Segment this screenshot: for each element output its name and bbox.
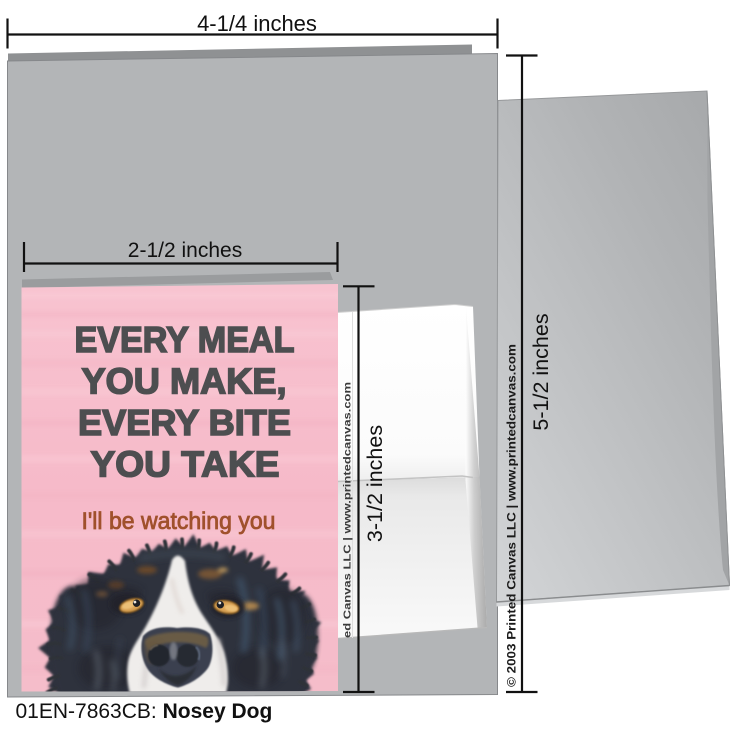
svg-text:2-1/2 inches: 2-1/2 inches [128,239,242,262]
svg-text:01EN-7863CB: Nosey Dog: 01EN-7863CB: Nosey Dog [16,700,273,723]
svg-text:3-1/2 inches: 3-1/2 inches [363,425,387,542]
svg-text:YOU TAKE: YOU TAKE [91,444,280,485]
svg-text:I'll be watching you: I'll be watching you [82,508,276,535]
svg-text:© 2003 Printed Canvas LLC | ww: © 2003 Printed Canvas LLC | www.printedc… [505,344,519,687]
svg-text:5-1/2 inches: 5-1/2 inches [529,313,553,430]
svg-text:4-1/4 inches: 4-1/4 inches [197,11,317,36]
svg-text:EVERY BITE: EVERY BITE [78,402,291,443]
svg-text:ed Canvas LLC | www.printedcan: ed Canvas LLC | www.printedcanvas.com [343,382,354,638]
svg-text:YOU MAKE,: YOU MAKE, [82,361,287,402]
svg-text:EVERY MEAL: EVERY MEAL [75,319,295,360]
